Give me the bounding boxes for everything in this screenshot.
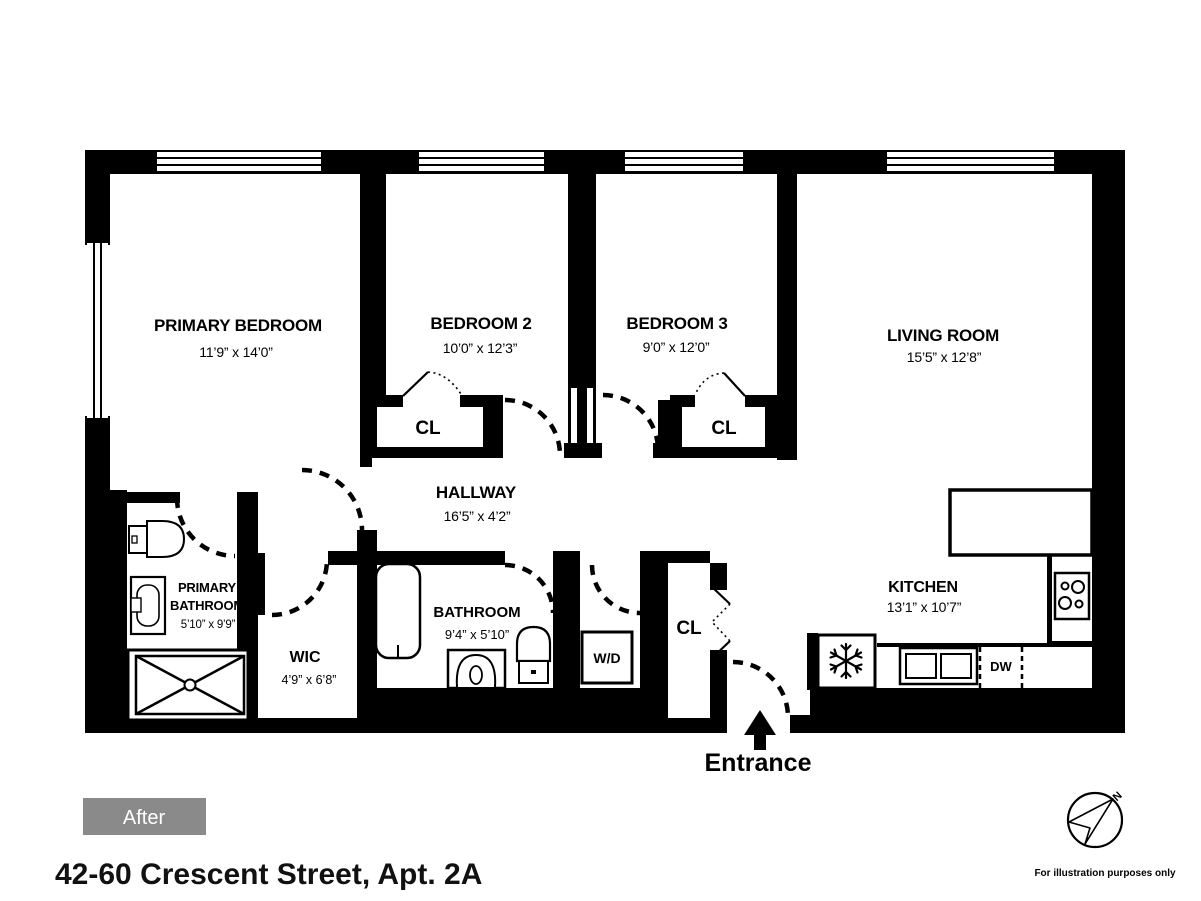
window-primary-bedroom xyxy=(157,152,321,171)
bedroom3-dims: 9’0” x 12’0” xyxy=(643,339,710,355)
primary-bathroom-label-line1: PRIMARY xyxy=(178,580,237,595)
bathroom-label: BATHROOM xyxy=(433,604,520,621)
entrance-door-arc xyxy=(733,662,788,717)
compass-north-label: N xyxy=(1111,790,1125,804)
bedroom3-closet-door xyxy=(696,373,745,396)
entry-closet-bifold-door xyxy=(711,586,730,659)
wic-door-arc xyxy=(272,560,327,615)
toilet-bathroom xyxy=(448,650,505,688)
stove xyxy=(1055,573,1089,619)
toilet-primary xyxy=(129,521,184,557)
floorplan-page: DW PRIMARY BEDROOM 11’9” x 14’0” BEDROOM… xyxy=(0,0,1201,901)
window-bedroom3 xyxy=(625,152,743,171)
dishwasher-label: DW xyxy=(990,659,1012,674)
bathtub xyxy=(376,564,420,658)
compass: N xyxy=(1068,790,1125,847)
primary-bathroom-door-arc xyxy=(177,498,235,556)
after-badge: After xyxy=(83,798,206,835)
bedroom3-closet-label: CL xyxy=(711,418,737,439)
washer-dryer-door-arc xyxy=(592,565,640,613)
entrance-arrow-icon xyxy=(744,710,776,750)
kitchen-sink xyxy=(900,648,977,684)
dishwasher: DW xyxy=(980,647,1022,688)
after-badge-label: After xyxy=(123,807,166,829)
refrigerator xyxy=(818,635,875,688)
sink-bathroom xyxy=(517,627,550,683)
bedroom2-label: BEDROOM 2 xyxy=(430,314,531,333)
bedroom2-dims: 10’0” x 12’3” xyxy=(443,340,518,356)
hallway-dims: 16’5” x 4’2” xyxy=(444,508,511,524)
window-living-room xyxy=(887,152,1054,171)
living-room-label: LIVING ROOM xyxy=(887,326,999,345)
bedroom3-label: BEDROOM 3 xyxy=(626,314,727,333)
wic-dims: 4’9” x 6’8” xyxy=(282,673,337,687)
entry-closet-label: CL xyxy=(676,618,702,639)
primary-bathroom-label-line2: BATHROOM xyxy=(170,598,244,613)
wic-label: WIC xyxy=(289,649,321,666)
sink-primary xyxy=(131,577,165,634)
bedroom2-closet-label: CL xyxy=(415,418,441,439)
primary-bedroom-label: PRIMARY BEDROOM xyxy=(154,316,322,335)
address-title: 42-60 Crescent Street, Apt. 2A xyxy=(55,858,482,891)
window-bedroom2 xyxy=(419,152,544,171)
bathroom-dims: 9’4” x 5’10” xyxy=(445,627,509,642)
entrance-label: Entrance xyxy=(705,749,812,777)
bedroom3-door-arc xyxy=(603,395,658,450)
kitchen-dims: 13’1” x 10’7” xyxy=(887,599,962,615)
bedroom2-closet-door xyxy=(403,372,461,396)
window-left-wall xyxy=(87,243,108,418)
washer-dryer-label: W/D xyxy=(593,650,620,666)
shower-primary xyxy=(128,650,248,720)
kitchen-label: KITCHEN xyxy=(888,579,958,596)
bedroom2-door-arc xyxy=(505,400,560,455)
hallway-label: HALLWAY xyxy=(436,483,517,502)
disclaimer-text: For illustration purposes only xyxy=(1034,868,1176,879)
primary-bathroom-dims: 5’10” x 9’9” xyxy=(181,619,236,631)
primary-bedroom-dims: 11’9” x 14’0” xyxy=(199,344,273,360)
primary-bedroom-door-arc xyxy=(302,470,362,530)
living-room-dims: 15’5” x 12’8” xyxy=(907,349,982,365)
kitchen-peninsula-counter xyxy=(950,490,1092,555)
